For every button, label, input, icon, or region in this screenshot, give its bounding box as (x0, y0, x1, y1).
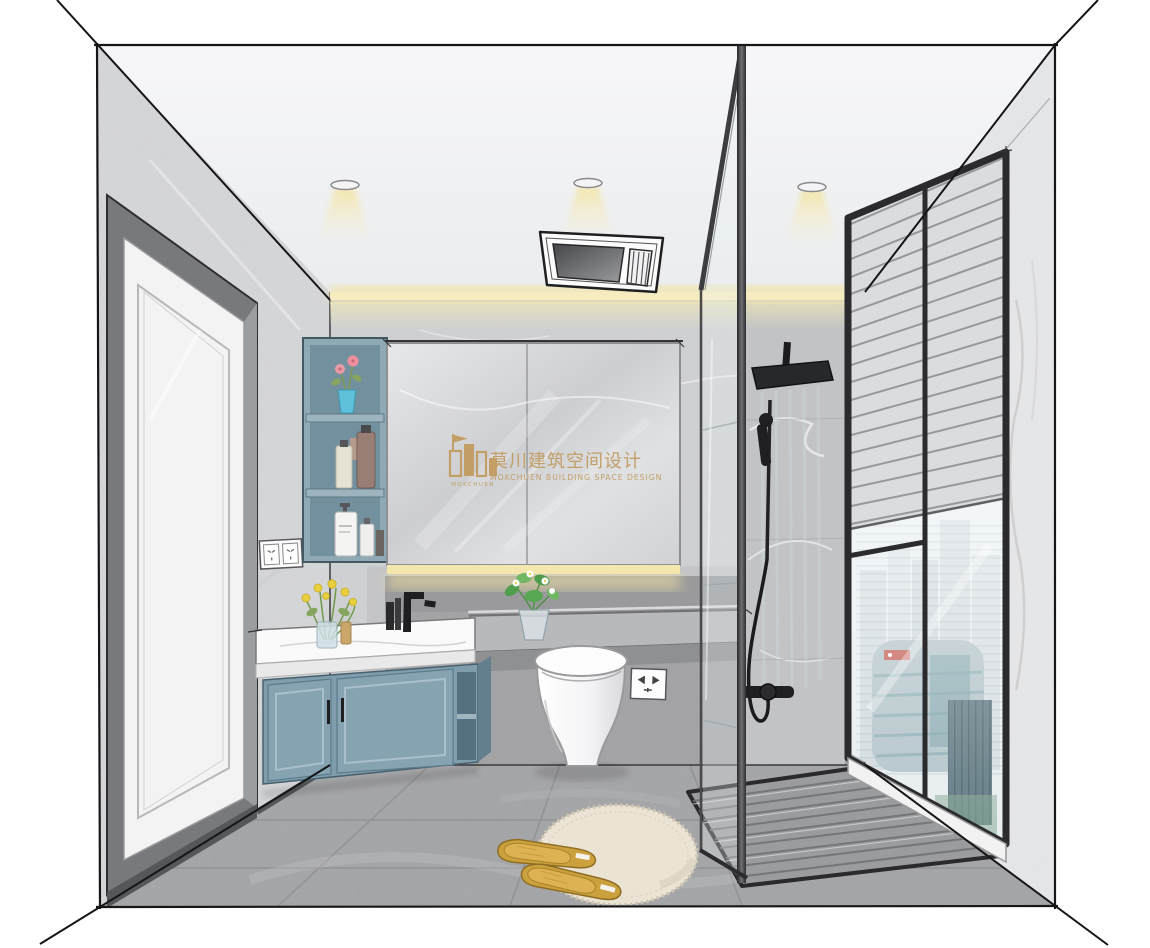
shower-valve (742, 684, 794, 700)
mirror-led-strip (387, 565, 680, 590)
watermark-title-cn: 莫川建筑空间设计 (490, 451, 642, 472)
window (848, 146, 1012, 862)
cabinet-handle (327, 700, 330, 724)
rendering-svg: MOKCHUEN 莫川建筑空间设计 MOKCHUEN BUILDING SPAC… (0, 0, 1150, 948)
watermark-logo-caption: MOKCHUEN (451, 482, 495, 488)
wall-outlet (259, 539, 302, 569)
bathroom-rendering-canvas: MOKCHUEN 莫川建筑空间设计 MOKCHUEN BUILDING SPAC… (0, 0, 1150, 948)
watermark-title-en: MOKCHUEN BUILDING SPACE DESIGN (490, 473, 662, 482)
door-slab (124, 238, 244, 860)
toilet-outlet (630, 668, 666, 699)
ceiling-heater-unit (540, 232, 663, 292)
open-shelf-unit (303, 338, 387, 562)
cabinet-handle (341, 698, 344, 722)
cove-led-strip (330, 286, 860, 330)
